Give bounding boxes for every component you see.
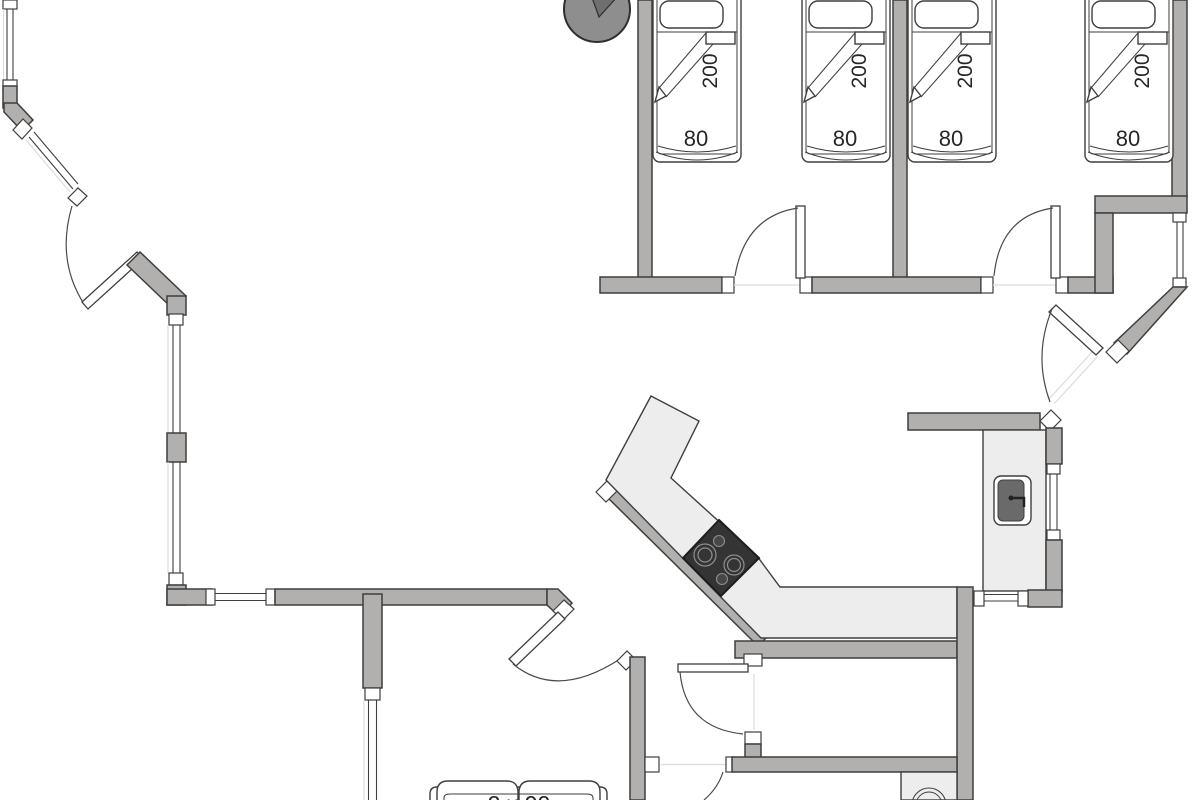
bed-width-label: 80 bbox=[684, 126, 708, 151]
left-exterior-wall bbox=[3, 0, 572, 617]
kitchen-counter bbox=[606, 396, 957, 638]
window-post bbox=[1047, 464, 1060, 474]
interior-partition-wall bbox=[363, 594, 382, 800]
burner bbox=[714, 536, 725, 547]
bed-length-label: 200 bbox=[954, 53, 977, 88]
door-post bbox=[1056, 277, 1068, 293]
door-leaf bbox=[796, 206, 805, 278]
window-mid-post bbox=[167, 433, 186, 462]
window-post bbox=[1047, 530, 1060, 540]
window-post bbox=[3, 0, 17, 9]
window-post bbox=[68, 188, 87, 206]
wall-segment bbox=[1046, 540, 1062, 592]
wall-segment bbox=[363, 594, 382, 688]
window-post bbox=[365, 688, 380, 700]
entrance-door-leaf bbox=[1049, 305, 1103, 355]
bed-width-label: 80 bbox=[1116, 126, 1140, 151]
bedroom-door-2 bbox=[994, 206, 1060, 278]
door-threshold bbox=[1054, 356, 1098, 404]
floor-plan-page: 200 80 200 80 200 80 200 80 bbox=[0, 0, 1200, 800]
bed-length-label: 200 bbox=[848, 53, 871, 88]
door-post bbox=[722, 277, 734, 293]
door-swing-arc bbox=[704, 772, 723, 800]
window-post bbox=[206, 589, 215, 605]
wall-segment bbox=[893, 0, 907, 278]
window-post bbox=[169, 573, 183, 585]
door-leaf bbox=[678, 664, 748, 672]
wall-segment bbox=[732, 757, 957, 772]
door-swing-arc bbox=[735, 208, 798, 276]
wall-segment bbox=[1095, 196, 1187, 213]
door-swing-arc bbox=[680, 672, 743, 734]
door-leaf bbox=[509, 612, 565, 666]
wall-segment bbox=[630, 657, 645, 800]
bed-width-label: 80 bbox=[833, 126, 857, 151]
burner bbox=[717, 574, 728, 585]
window-post bbox=[1173, 278, 1186, 287]
window-post bbox=[1173, 213, 1186, 222]
wall-segment bbox=[1095, 213, 1113, 293]
wood-stove-icon bbox=[564, 0, 630, 42]
wall-corner bbox=[1028, 590, 1062, 607]
door-post bbox=[745, 732, 761, 744]
bed-length-label: 200 bbox=[1131, 53, 1154, 88]
wall-segment bbox=[908, 413, 1040, 430]
utility-corner bbox=[901, 772, 957, 800]
window-post bbox=[169, 314, 183, 325]
wall-segment bbox=[167, 589, 212, 605]
wall-segment bbox=[600, 277, 722, 293]
double-bed: 2 x 90 bbox=[430, 781, 607, 800]
wall-segment bbox=[275, 589, 547, 605]
beds: 200 80 200 80 200 80 200 80 bbox=[653, 0, 1173, 162]
window-post bbox=[266, 589, 275, 605]
door-swing-arc bbox=[513, 659, 620, 681]
wall-segment bbox=[957, 587, 973, 800]
wall-segment bbox=[638, 0, 652, 278]
floor-plan-drawing: 200 80 200 80 200 80 200 80 bbox=[0, 0, 1200, 800]
door-post bbox=[800, 277, 812, 293]
wall-segment bbox=[812, 277, 981, 293]
window-post bbox=[1018, 591, 1028, 606]
door-leaf bbox=[1051, 206, 1060, 278]
door-swing-arc bbox=[1042, 309, 1052, 402]
door-swing-arc bbox=[66, 206, 84, 304]
bed-length-label: 200 bbox=[699, 53, 722, 88]
bedroom-door-1 bbox=[735, 206, 805, 278]
sink-icon bbox=[994, 476, 1031, 525]
bed-width-label: 80 bbox=[939, 126, 963, 151]
wall-segment bbox=[1046, 428, 1062, 464]
wall-segment bbox=[167, 296, 186, 315]
entrance-area bbox=[1042, 287, 1187, 404]
double-bed-label: 2 x 90 bbox=[488, 791, 551, 800]
wall-stub bbox=[745, 744, 761, 758]
door-threshold bbox=[1049, 351, 1093, 399]
door-post bbox=[645, 757, 659, 772]
sink-room bbox=[908, 410, 1062, 607]
wall-diagonal bbox=[1114, 287, 1187, 354]
wall-segment bbox=[1172, 0, 1187, 197]
window-glazing bbox=[29, 137, 73, 189]
kitchen bbox=[596, 396, 973, 800]
wall-segment bbox=[735, 641, 957, 658]
window-post bbox=[974, 591, 984, 606]
washing-machine-icon bbox=[901, 772, 957, 800]
door-swing-arc bbox=[994, 208, 1053, 276]
living-room-door bbox=[509, 600, 636, 681]
door-post bbox=[981, 277, 993, 293]
